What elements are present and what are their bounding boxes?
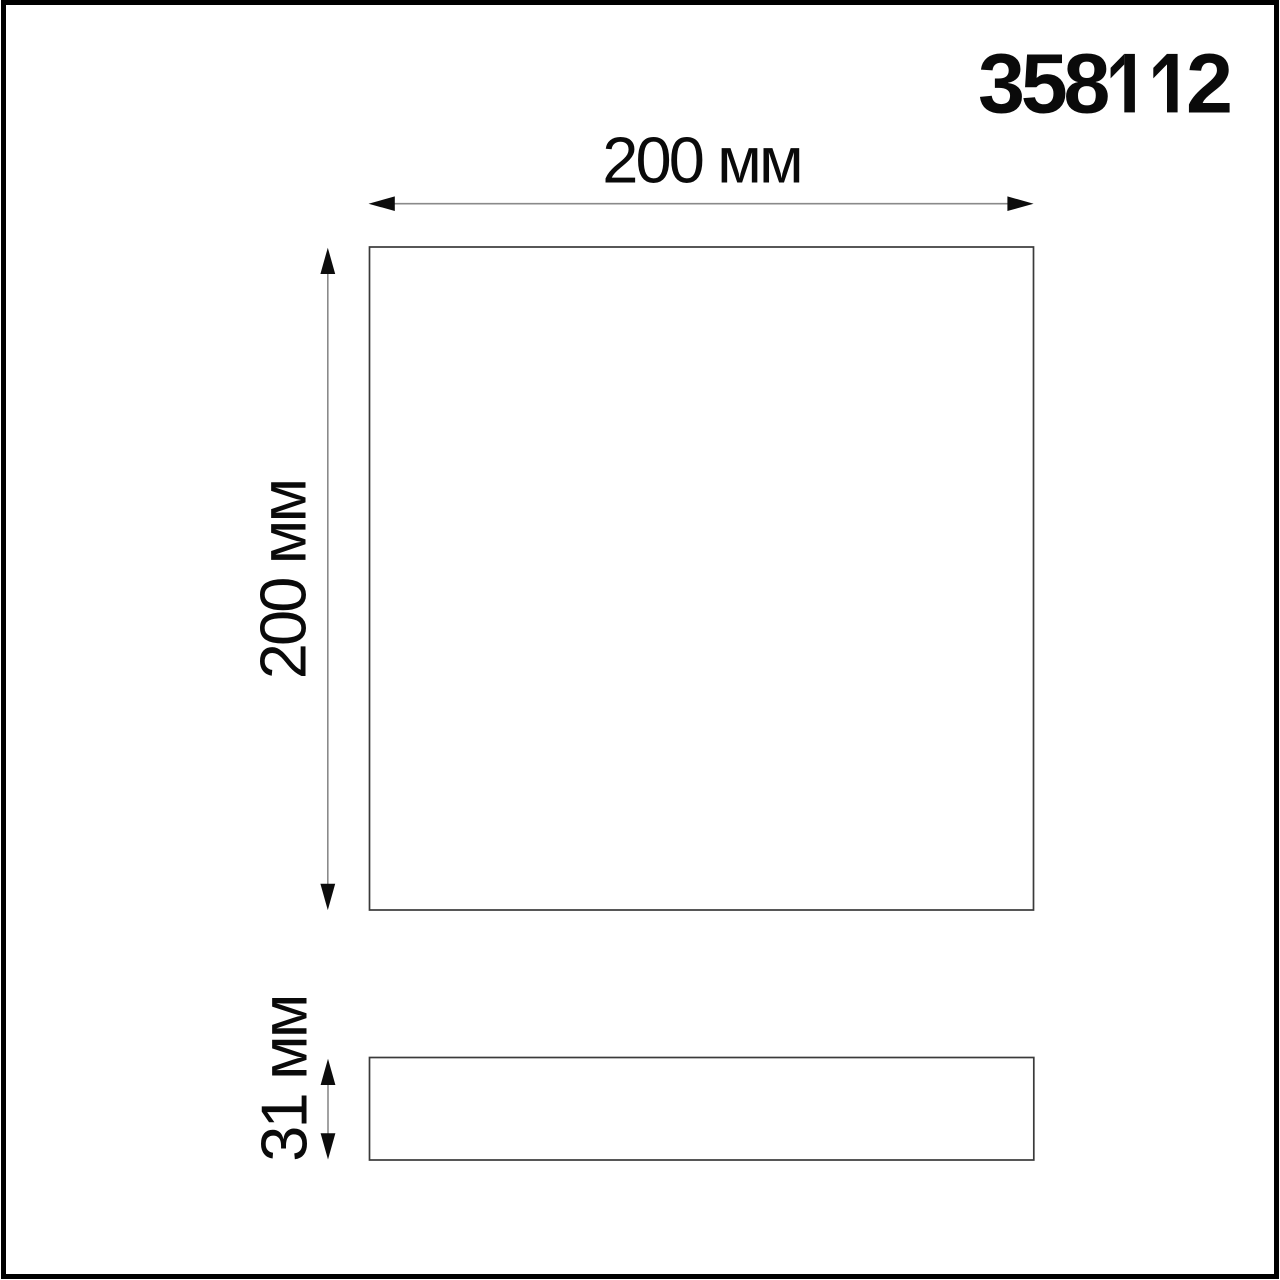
svg-text:200 мм: 200 мм [247,481,320,679]
svg-text:200 мм: 200 мм [602,123,800,196]
svg-text:358: 358 [978,36,1108,130]
svg-text:2: 2 [1186,36,1230,130]
svg-text:31 мм: 31 мм [248,996,321,1161]
